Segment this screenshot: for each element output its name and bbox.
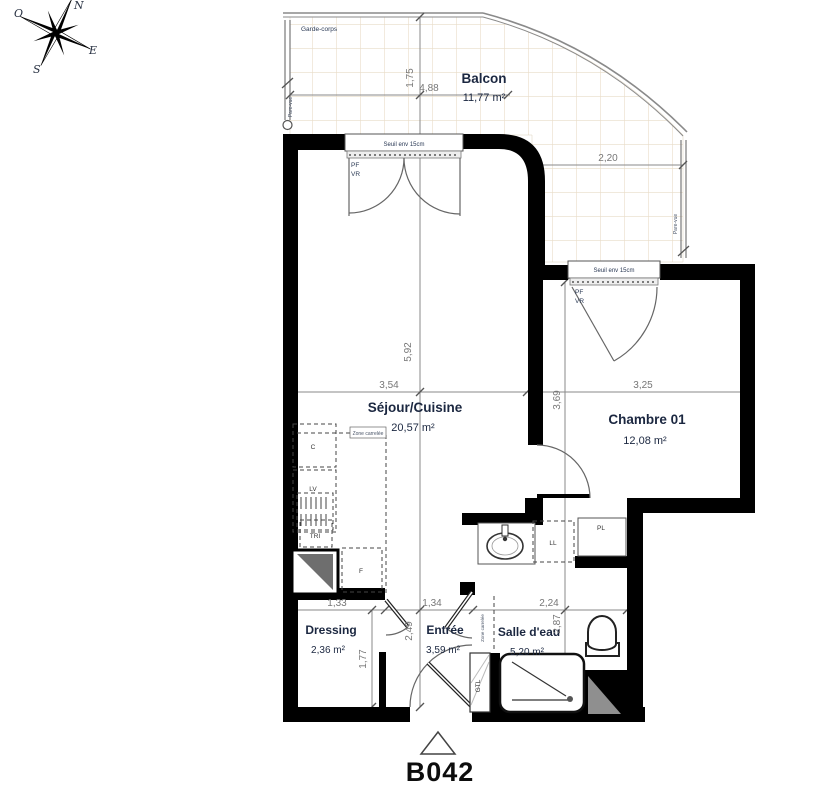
seuil-sejour-label: Seuil env 15cm [383,142,424,148]
chambre-area: 12,08 m² [623,435,667,447]
dishwasher-outline [293,470,336,532]
pare-vue-left-label: Pare-vue [288,97,294,118]
fridge-label: F [359,568,363,575]
garde-corps-label: Garde-corps [301,26,338,33]
sink-outline [297,493,333,530]
compass-s: S [33,63,41,76]
chambre-balcony-window [568,261,660,361]
salle-eau-area: 5,20 m² [510,647,545,658]
vr-sejour-label: VR [351,171,360,178]
dim-sejour-height: 5,92 [403,342,414,362]
dim-dressing-height: 1,77 [358,649,369,669]
dim-dressing-width: 1,33 [327,598,347,609]
entrance-arrow [421,732,455,754]
gtl-label: GTL [475,679,482,692]
unit-label: B042 [406,757,475,787]
salle-eau-name: Salle d'eau [498,625,560,639]
dishwasher-label: LV [309,486,317,493]
entree-area: 3,59 m² [426,645,461,656]
compass-o: O [14,7,23,20]
closet-label: PL [597,525,605,532]
shower [500,654,584,712]
tri-label: TRI [310,533,321,540]
toilet [586,616,619,656]
kitchen-counter [292,550,338,594]
dim-sejour-width: 3,54 [379,380,399,391]
sink-drainer-hatch [301,497,326,526]
cooker-label: C [311,444,316,451]
sejour-name: Séjour/Cuisine [368,400,463,415]
vr-chambre-label: VR [575,298,584,305]
washbasin [478,523,535,564]
seuil-chambre-label: Seuil env 15cm [593,268,634,274]
entree-name: Entrée [426,623,464,637]
compass-rose: N O E S [5,0,107,82]
dim-chambre-height: 3,69 [552,390,563,410]
pare-vue-right-label: Pare-vue [673,214,679,235]
floor-plan-page: N O E S B042 Balcon 11,77 m² Séjour/Cuis… [0,0,838,800]
chambre-name: Chambre 01 [608,412,686,427]
dim-entree-height: 2,49 [404,621,415,641]
dim-balcon-width: 4,88 [419,83,439,94]
chambre-door [537,445,590,498]
sejour-area: 20,57 m² [391,422,435,434]
washing-machine-label: LL [549,540,557,547]
compass-e: E [88,44,97,57]
dressing-name: Dressing [305,623,356,637]
balcon-name: Balcon [461,71,506,86]
dim-balcon-right: 2,20 [598,153,618,164]
zone-carrelee-kitchen-label: Zone carrelée [353,431,384,437]
pf-chambre-label: PF [575,289,583,296]
zone-carrelee-sde-label: Zone carrelée [480,614,485,642]
floor-plan-svg: N O E S B042 Balcon 11,77 m² Séjour/Cuis… [0,0,838,800]
dim-balcon-depth: 1,75 [405,68,416,88]
pf-sejour-label: PF [351,162,359,169]
dim-salle-eau-height: 2,87 [552,614,563,634]
dim-entree-width: 1,34 [422,598,442,609]
compass-n: N [73,0,84,12]
balcon-area: 11,77 m² [463,92,506,104]
dim-chambre-width: 3,25 [633,380,653,391]
closet-pl [578,518,626,556]
dressing-area: 2,36 m² [311,645,346,656]
kitchen-zone [292,424,386,596]
dim-salle-eau-width: 2,24 [539,598,559,609]
